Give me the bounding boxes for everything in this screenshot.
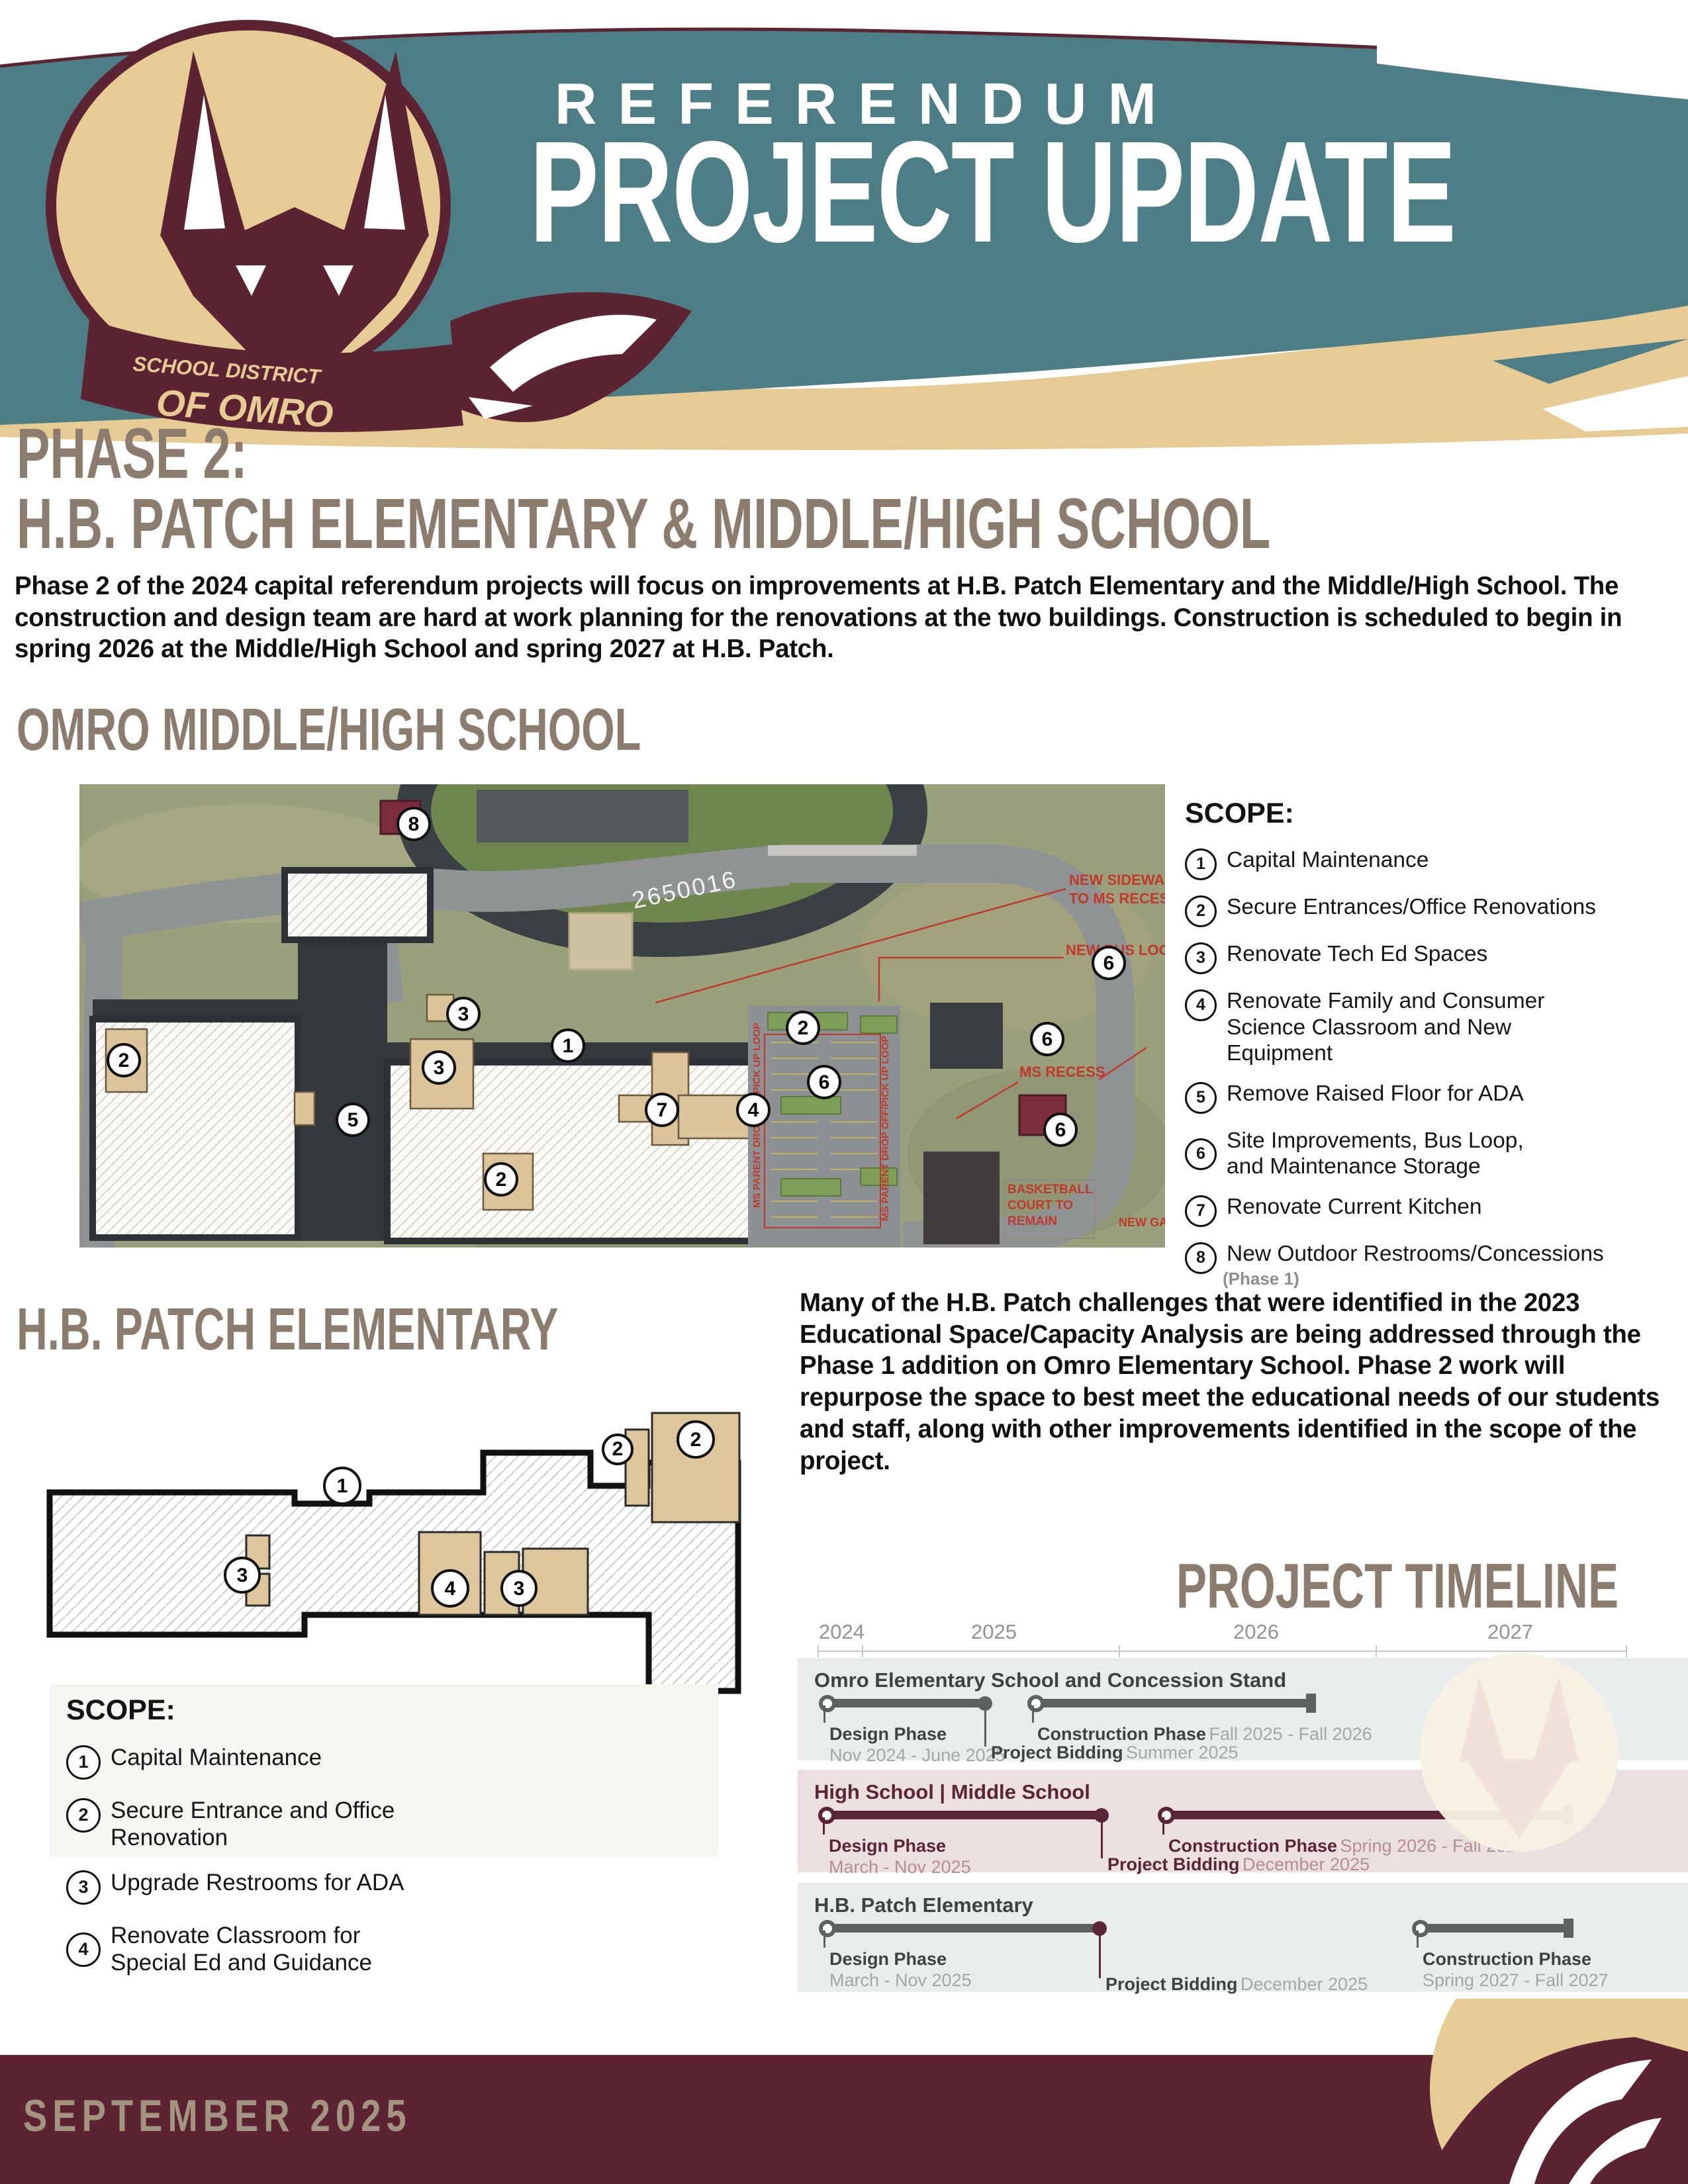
- map-marker: 3: [458, 1003, 469, 1025]
- phase-label: Design Phase: [829, 1836, 946, 1856]
- timeline-row-high-middle: High School | Middle School Design Phase…: [798, 1770, 1688, 1872]
- phase-dates: Spring 2027 - Fall 2027: [1423, 1970, 1609, 1991]
- scope-number: 6: [1185, 1138, 1217, 1170]
- scope-item: 6Site Improvements, Bus Loop, and Mainte…: [1185, 1128, 1688, 1180]
- bar-start-marker: [819, 1920, 836, 1937]
- scope-item: 5Remove Raised Floor for ADA: [1185, 1081, 1688, 1114]
- map-marker: 6: [819, 1071, 830, 1093]
- scope-number: 5: [1185, 1082, 1217, 1114]
- phase-label: Project Bidding: [1107, 1854, 1240, 1874]
- plan-marker: 2: [612, 1438, 624, 1460]
- annotation-basketball-3: REMAIN: [1008, 1214, 1057, 1228]
- scope-number: 4: [1185, 989, 1217, 1021]
- scope-number: 2: [66, 1798, 101, 1833]
- annotation-basketball-1: BASKETBALL: [1008, 1183, 1093, 1197]
- map-marker: 2: [496, 1169, 507, 1191]
- phase-label: Construction Phase: [1168, 1836, 1337, 1856]
- scope-text: Capital Maintenance: [111, 1744, 322, 1771]
- scope-item: 1Capital Maintenance: [66, 1744, 702, 1780]
- header-title: PROJECT UPDATE: [530, 120, 1455, 265]
- scope-text: Secure Entrances/Office Renovations: [1227, 894, 1596, 921]
- map-marker: 5: [348, 1109, 359, 1131]
- plan-marker: 1: [337, 1475, 348, 1497]
- scope-item: 1Capital Maintenance: [1185, 847, 1688, 880]
- scope-item: 4Renovate Family and Consumer Science Cl…: [1185, 988, 1688, 1067]
- construction-bar: [1033, 1699, 1311, 1707]
- parking-lot: [748, 1006, 900, 1248]
- project-timeline: 2024 2025 2026 2027 Omro Elementary Scho…: [798, 1620, 1688, 1994]
- scope-number: 2: [1185, 895, 1217, 927]
- scope-number: 3: [1185, 942, 1217, 974]
- scope-text: New Outdoor Restrooms/Concessions: [1227, 1241, 1604, 1267]
- scope-item: 7Renovate Current Kitchen: [1185, 1194, 1688, 1227]
- scope-number: 7: [1185, 1195, 1217, 1227]
- scope-item: 2Secure Entrances/Office Renovations: [1185, 894, 1688, 927]
- scope-item: 3Renovate Tech Ed Spaces: [1185, 941, 1688, 974]
- map-marker: 7: [657, 1099, 668, 1121]
- bar-end-cap: [1563, 1805, 1573, 1825]
- phase-dates: Fall 2025 - Fall 2026: [1209, 1724, 1372, 1744]
- intro-heading-2: H.B. PATCH ELEMENTARY & MIDDLE/HIGH SCHO…: [17, 488, 1688, 559]
- newsletter-page: SCHOOL DISTRICT OF OMRO REFERENDUM PROJE…: [0, 0, 1688, 2184]
- scope-text: Site Improvements, Bus Loop, and Mainten…: [1227, 1128, 1558, 1180]
- aerial-map: 2650016 NEW SIDEWALK TO MS RECESS NEW BU…: [79, 784, 1165, 1248]
- scope-number: 1: [66, 1745, 101, 1780]
- phase-label: Design Phase: [829, 1949, 947, 1970]
- scope-text: Capital Maintenance: [1227, 847, 1429, 874]
- phase-dates: December 2025: [1241, 1974, 1368, 1994]
- design-bar: [824, 1699, 984, 1707]
- timeline-axis: [818, 1651, 1627, 1652]
- phase-dates: March - Nov 2025: [829, 1857, 971, 1878]
- year-label: 2026: [1233, 1620, 1279, 1644]
- scope-item: 2Secure Entrance and Office Renovation: [66, 1797, 702, 1852]
- map-marker: 1: [563, 1035, 574, 1057]
- scope-number: 1: [1185, 848, 1217, 880]
- hb-scope: SCOPE: 1Capital Maintenance 2Secure Entr…: [66, 1694, 702, 1993]
- ms-scope: SCOPE: 1Capital Maintenance 2Secure Entr…: [1185, 797, 1688, 1289]
- year-label: 2027: [1487, 1620, 1533, 1644]
- phase-dates: Spring 2026 - Fall 2027: [1340, 1836, 1526, 1856]
- hb-heading: H.B. PATCH ELEMENTARY: [17, 1296, 769, 1364]
- annotation-sidewalk-2: TO MS RECESS: [1069, 890, 1165, 907]
- timeline-row-omro-elementary: Omro Elementary School and Concession St…: [798, 1658, 1688, 1760]
- map-marker: 2: [118, 1050, 130, 1071]
- annotation-basketball-2: COURT TO: [1008, 1199, 1073, 1212]
- design-bar: [824, 1924, 1099, 1933]
- bar-start-marker: [1412, 1920, 1429, 1937]
- bar-end-cap: [1306, 1694, 1316, 1713]
- scope-text: Renovate Classroom for Special Ed and Gu…: [111, 1922, 395, 1977]
- header-banner: SCHOOL DISTRICT OF OMRO REFERENDUM PROJE…: [0, 0, 1688, 450]
- phase-label: Design Phase: [829, 1724, 947, 1745]
- scope-item: 3Upgrade Restrooms for ADA: [66, 1869, 702, 1905]
- timeline-row-title: High School | Middle School: [814, 1780, 1090, 1804]
- bleachers: [477, 790, 688, 842]
- scope-text: Upgrade Restrooms for ADA: [111, 1869, 404, 1896]
- scope-number: 3: [66, 1870, 101, 1905]
- design-bar: [823, 1811, 1101, 1819]
- scope-text: Renovate Family and Consumer Science Cla…: [1227, 988, 1571, 1067]
- annotation-new-gate: NEW GATE: [1119, 1216, 1165, 1229]
- year-label: 2025: [971, 1620, 1017, 1644]
- bar-start-marker: [818, 1807, 835, 1824]
- scope-text: Secure Entrance and Office Renovation: [111, 1797, 395, 1852]
- timeline-row-title: H.B. Patch Elementary: [814, 1893, 1033, 1917]
- phase-label: Construction Phase: [1037, 1724, 1206, 1744]
- bar-end-cap: [1564, 1919, 1573, 1938]
- plan-marker: 3: [237, 1565, 248, 1586]
- phase-dates: March - Nov 2025: [829, 1970, 972, 1991]
- scope-text: Renovate Tech Ed Spaces: [1227, 941, 1487, 968]
- roof-connector: [298, 940, 387, 1241]
- upper-wing: [285, 870, 430, 940]
- timeline-heading: PROJECT TIMELINE: [1004, 1550, 1618, 1623]
- footer-fox-art: [1225, 1999, 1688, 2184]
- scope-number: 8: [1185, 1242, 1217, 1274]
- ms-site-map: 2650016 NEW SIDEWALK TO MS RECESS NEW BU…: [79, 784, 1165, 1248]
- timeline-row-hb-patch: H.B. Patch Elementary Design Phase March…: [798, 1883, 1688, 1992]
- annotation-sidewalk-1: NEW SIDEWALK: [1069, 872, 1165, 888]
- map-marker: 8: [408, 813, 420, 835]
- plan-marker: 2: [690, 1429, 702, 1451]
- new-sidewalk-pad: [569, 913, 632, 970]
- phase-label: Project Bidding: [991, 1743, 1123, 1762]
- scope-note: (Phase 1): [1223, 1269, 1688, 1289]
- construction-bar: [1163, 1811, 1568, 1819]
- construction-bar: [1417, 1924, 1568, 1933]
- annotation-ms-recess: MS RECESS: [1019, 1064, 1105, 1080]
- footer-date: SEPTEMBER 2025: [23, 2090, 508, 2142]
- ms-scope-title: SCOPE:: [1185, 797, 1688, 830]
- map-marker: 6: [1042, 1028, 1053, 1050]
- phase-dates: December 2025: [1243, 1854, 1370, 1874]
- map-marker: 6: [1055, 1119, 1066, 1141]
- phase-dates: Nov 2024 - June 2025: [829, 1745, 1006, 1766]
- map-marker: 3: [434, 1057, 445, 1079]
- intro-body: Phase 2 of the 2024 capital referendum p…: [15, 570, 1673, 665]
- ms-heading: OMRO MIDDLE/HIGH SCHOOL: [17, 696, 884, 764]
- challenges-paragraph: Many of the H.B. Patch challenges that w…: [800, 1287, 1688, 1477]
- scope-number: 4: [66, 1933, 101, 1967]
- phase-label: Project Bidding: [1105, 1974, 1238, 1994]
- map-marker: 4: [748, 1099, 759, 1121]
- bar-start-marker: [1158, 1807, 1175, 1824]
- hb-scope-title: SCOPE:: [66, 1694, 702, 1727]
- scope-text: Renovate Current Kitchen: [1227, 1194, 1481, 1220]
- phase-label: Construction Phase: [1423, 1949, 1591, 1970]
- intro-heading-1: PHASE 2:: [17, 418, 346, 488]
- bar-start-marker: [819, 1695, 836, 1712]
- annotation-drop-loop-2: MS PARENT DROP OFF/PICK UP LOOP: [880, 1036, 891, 1221]
- year-label: 2024: [819, 1620, 865, 1644]
- scope-item: 4Renovate Classroom for Special Ed and G…: [66, 1922, 702, 1977]
- phase-dates: Summer 2025: [1126, 1743, 1239, 1762]
- plan-marker: 4: [445, 1578, 456, 1600]
- bar-start-marker: [1027, 1695, 1045, 1712]
- scope-text: Remove Raised Floor for ADA: [1227, 1081, 1524, 1107]
- timeline-row-title: Omro Elementary School and Concession St…: [814, 1668, 1286, 1692]
- map-marker: 2: [798, 1017, 809, 1039]
- plan-marker: 3: [514, 1578, 525, 1600]
- map-marker: 6: [1103, 952, 1115, 974]
